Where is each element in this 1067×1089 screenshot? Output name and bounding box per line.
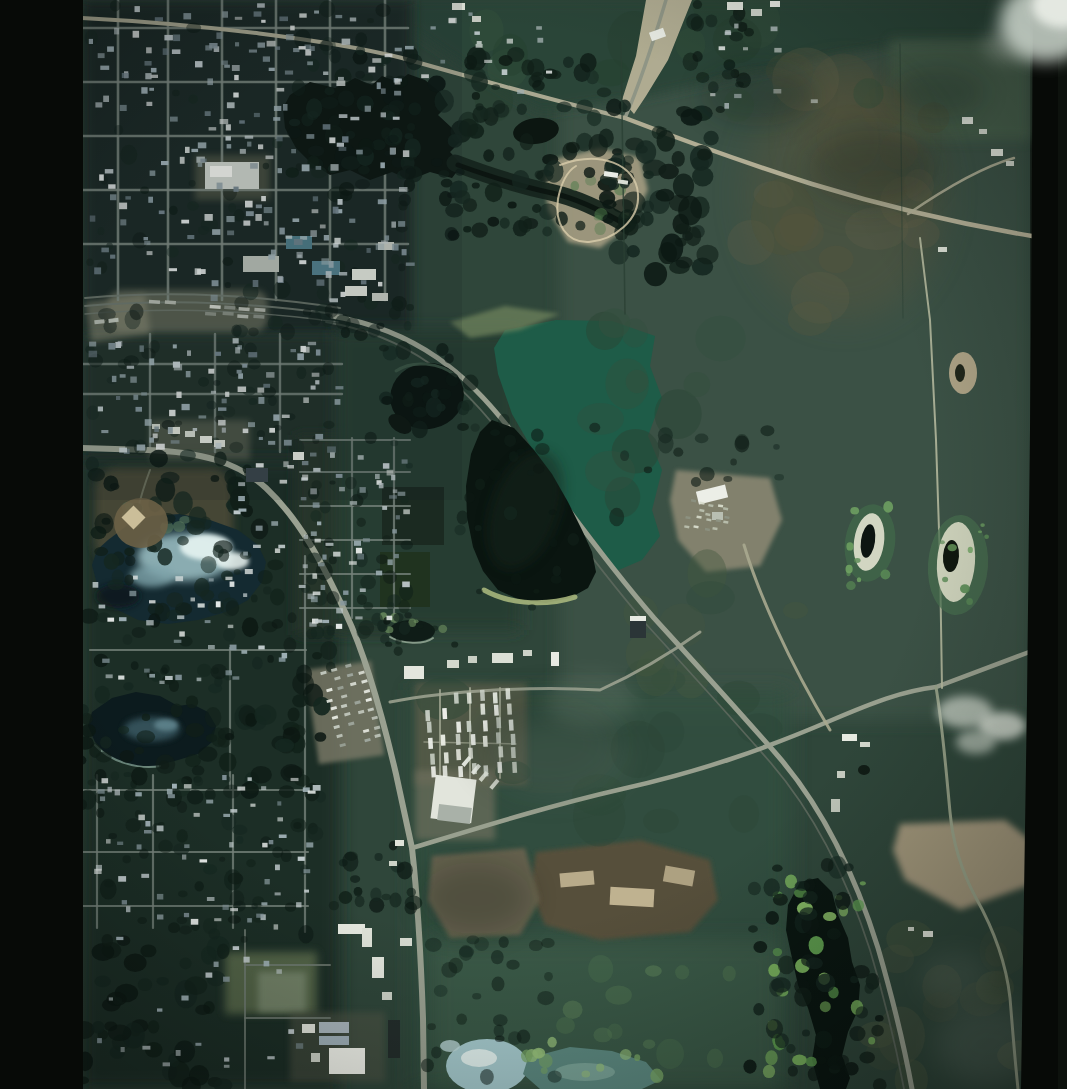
vignette xyxy=(0,0,1067,1089)
film-border-left xyxy=(0,0,83,1089)
film-edge-sliver xyxy=(1058,0,1067,1089)
aerial-photo-canvas xyxy=(0,0,1067,1089)
aerial-photograph xyxy=(0,0,1067,1089)
